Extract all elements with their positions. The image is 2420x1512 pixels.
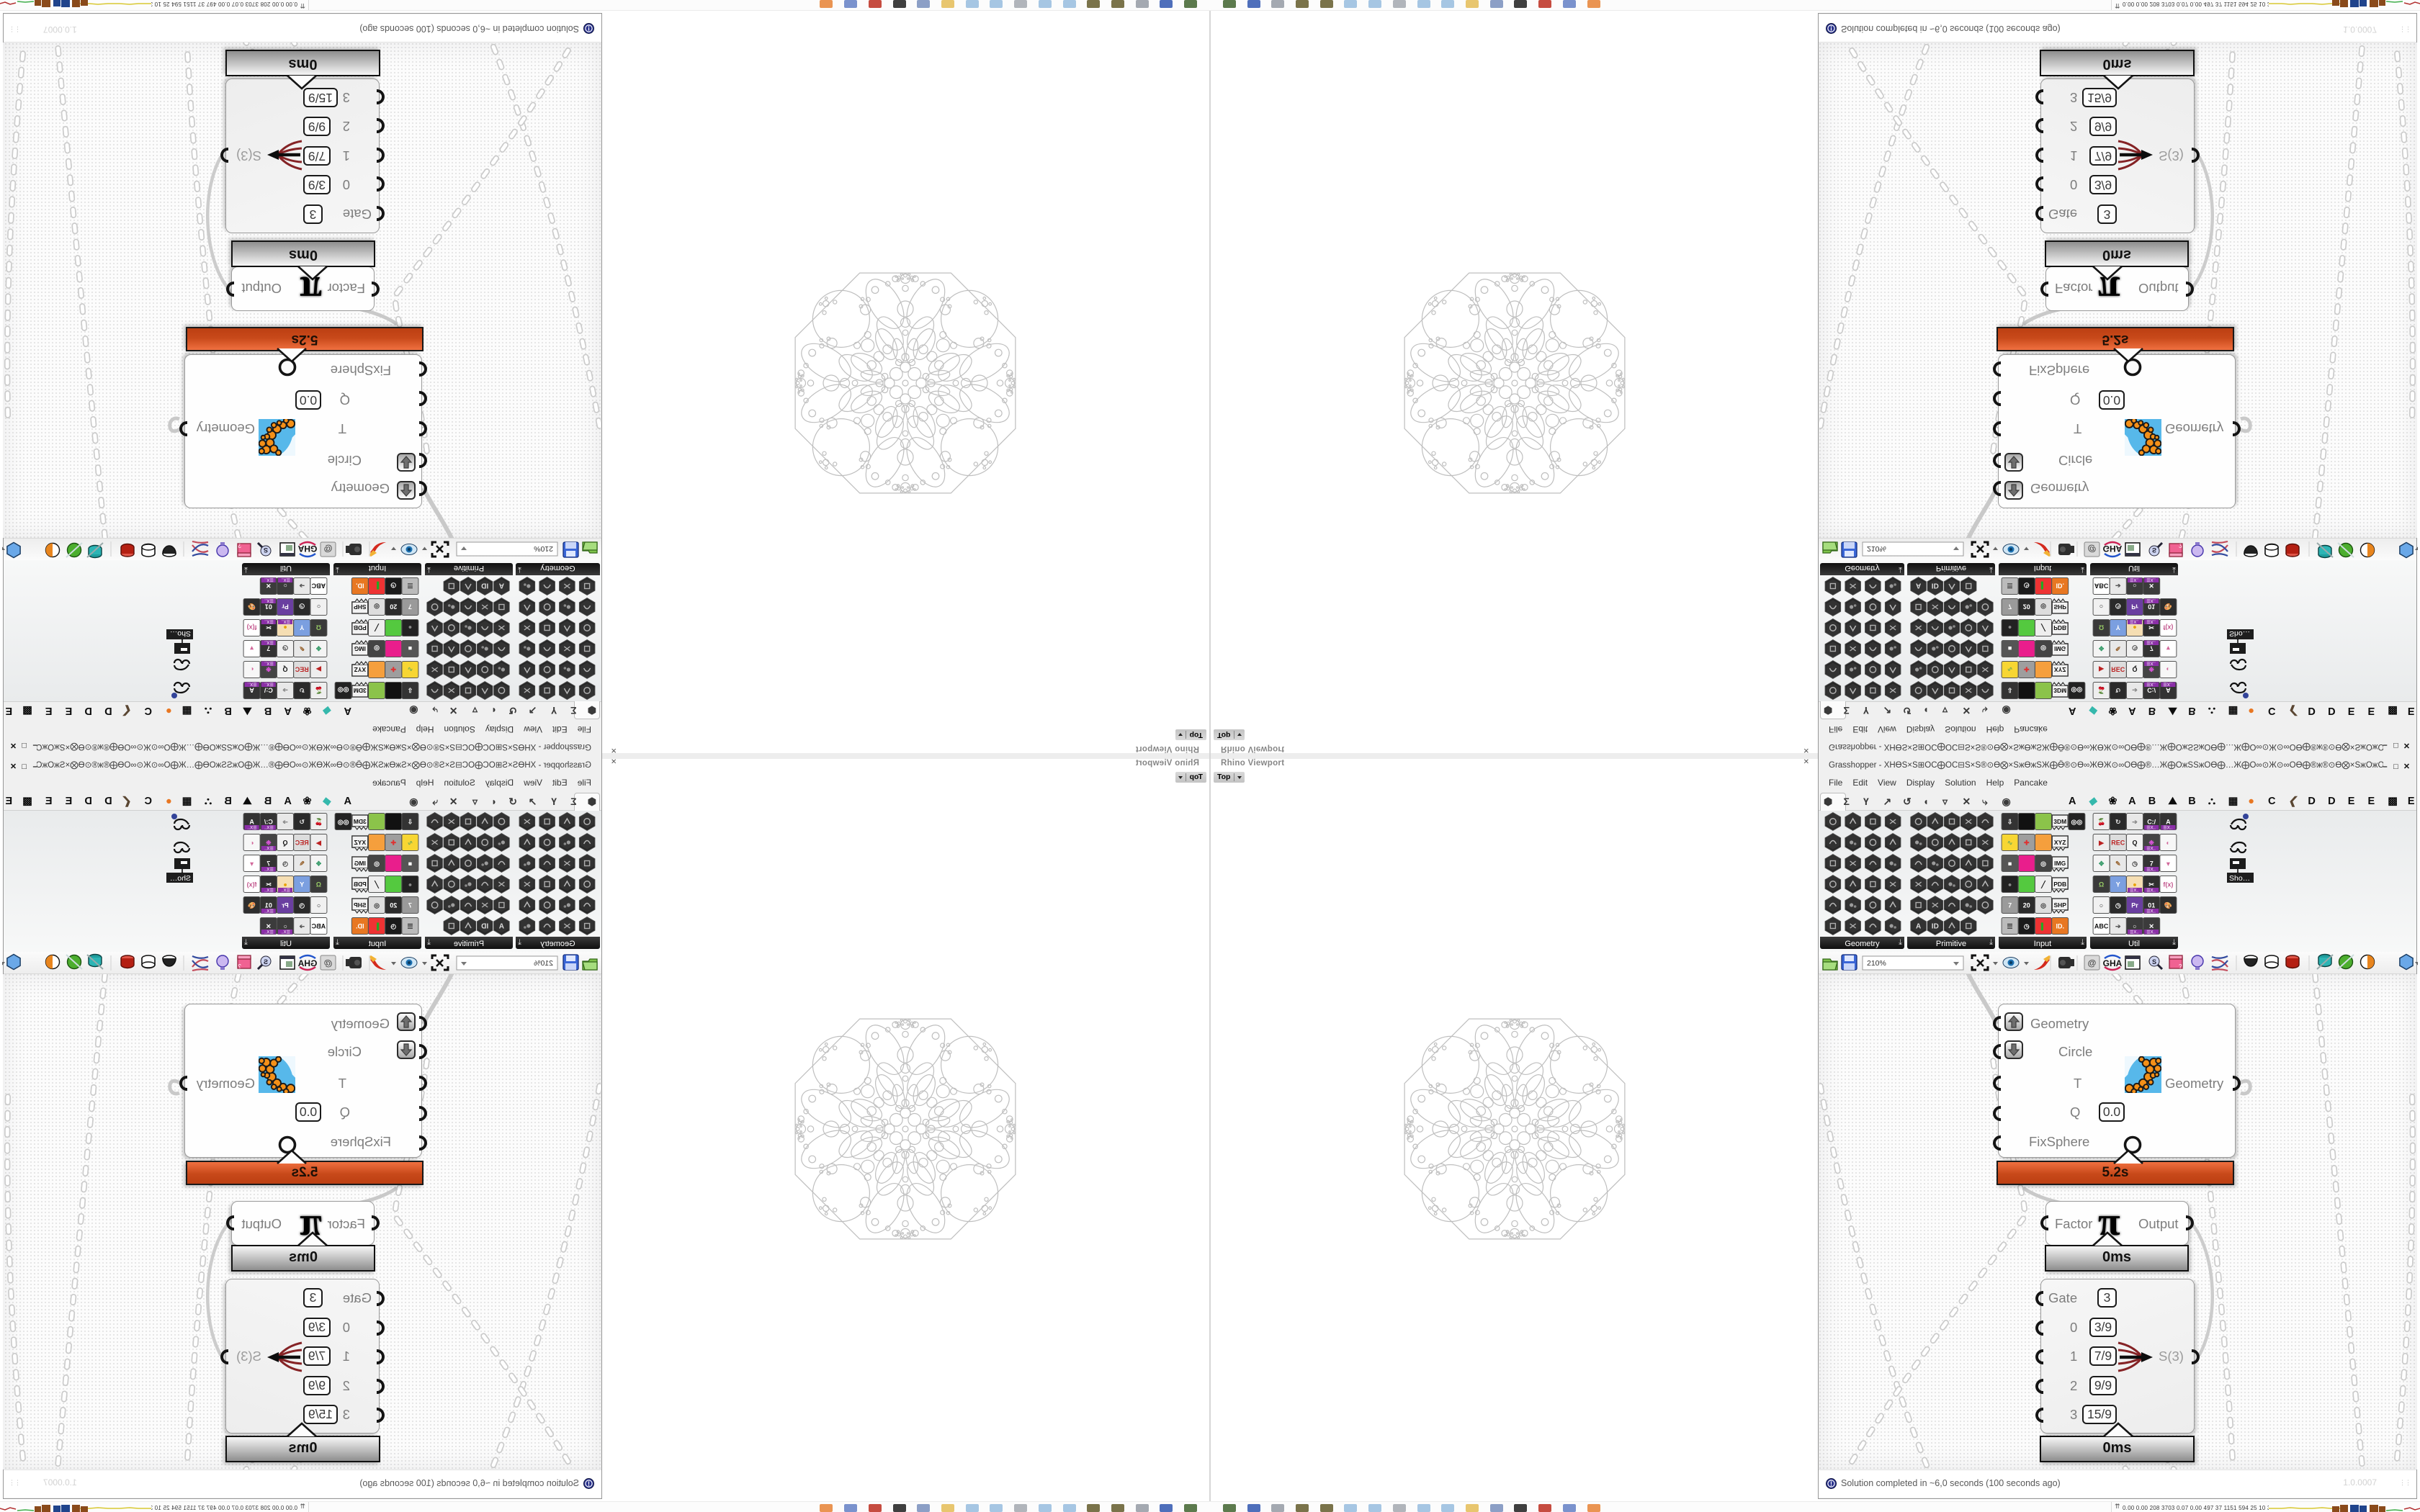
svg-text:A: A xyxy=(2166,687,2171,694)
svg-text:◷: ◷ xyxy=(2132,645,2138,652)
svg-text:☰X..: ☰X.. xyxy=(2163,682,2172,687)
svg-text:ABC: ABC xyxy=(311,582,326,590)
svg-text:⇩: ⇩ xyxy=(408,819,413,826)
svg-text:☰X..: ☰X.. xyxy=(264,577,274,582)
svg-text:Ω: Ω xyxy=(2099,881,2104,888)
svg-text:◷: ◷ xyxy=(299,603,305,611)
svg-text:■: ■ xyxy=(2008,645,2012,652)
svg-text:🎨: 🎨 xyxy=(248,901,256,909)
svg-text:◐: ◐ xyxy=(250,666,254,673)
svg-text:☰X..: ☰X.. xyxy=(2130,888,2139,894)
svg-text:☰X..: ☰X.. xyxy=(248,826,257,831)
svg-text:❉: ❉ xyxy=(266,666,272,673)
svg-text:Pr: Pr xyxy=(282,603,289,611)
svg-text:@: @ xyxy=(324,544,333,554)
svg-text:S: S xyxy=(2152,546,2156,554)
svg-text:✂: ✂ xyxy=(2148,624,2154,631)
svg-text:☰: ☰ xyxy=(407,923,413,930)
svg-text:◐: ◐ xyxy=(2166,840,2170,847)
svg-text:☰X..: ☰X.. xyxy=(2146,868,2156,873)
svg-text:◎◎: ◎◎ xyxy=(338,819,349,826)
svg-text:☰X..: ☰X.. xyxy=(264,619,274,624)
svg-text:☰X..: ☰X.. xyxy=(2130,619,2139,624)
svg-text:▌: ▌ xyxy=(375,922,379,931)
svg-text:?: ? xyxy=(2179,542,2182,549)
svg-text:▾: ▾ xyxy=(2166,645,2170,652)
svg-text:∿: ∿ xyxy=(408,840,413,847)
svg-text:ABC: ABC xyxy=(311,923,326,930)
svg-text:☰X..: ☰X.. xyxy=(264,868,274,873)
svg-text:✚: ✚ xyxy=(390,840,396,847)
svg-text:A: A xyxy=(1916,923,1921,931)
svg-text:✎: ✎ xyxy=(299,645,305,652)
svg-text:C:/: C:/ xyxy=(264,819,272,826)
svg-text:●: ● xyxy=(283,624,287,631)
svg-text:7: 7 xyxy=(2150,860,2154,868)
svg-text:20: 20 xyxy=(2023,603,2030,611)
svg-text:☰X..: ☰X.. xyxy=(2146,640,2156,645)
svg-text:f(x): f(x) xyxy=(247,624,257,631)
svg-text:Y: Y xyxy=(2116,881,2120,888)
svg-text:ABC: ABC xyxy=(2094,582,2109,590)
svg-text:☰X..: ☰X.. xyxy=(264,640,274,645)
svg-text:A: A xyxy=(499,582,504,590)
svg-text:C:/: C:/ xyxy=(2147,819,2156,826)
svg-text:7: 7 xyxy=(408,603,412,611)
svg-text:✚: ✚ xyxy=(2024,666,2030,673)
svg-text:➔: ➔ xyxy=(2115,582,2121,590)
svg-text:☰X..: ☰X.. xyxy=(2146,577,2156,582)
svg-text:●: ● xyxy=(283,881,287,888)
svg-text:!: ! xyxy=(1830,1480,1832,1488)
svg-text:XYZ: XYZ xyxy=(354,666,367,673)
svg-text:◎: ◎ xyxy=(2040,645,2046,652)
svg-text:☰X..: ☰X.. xyxy=(281,577,290,582)
svg-text:∿: ∿ xyxy=(2007,666,2013,673)
svg-text:◎◎: ◎◎ xyxy=(338,687,349,694)
svg-text:∿: ∿ xyxy=(408,666,413,673)
svg-text:▶: ▶ xyxy=(2098,840,2105,847)
svg-text:⇩: ⇩ xyxy=(2007,687,2013,694)
svg-text:Q: Q xyxy=(282,666,287,673)
svg-text:3DM: 3DM xyxy=(2053,818,2066,825)
svg-text:☰X..: ☰X.. xyxy=(264,598,274,603)
svg-text:➔: ➔ xyxy=(2132,687,2138,694)
svg-text:☰X..: ☰X.. xyxy=(2146,909,2156,914)
svg-text:☰X..: ☰X.. xyxy=(2146,619,2156,624)
svg-text:●: ● xyxy=(2133,881,2136,888)
svg-text:∿: ∿ xyxy=(2007,840,2013,847)
svg-text:✂: ✂ xyxy=(2148,881,2154,888)
svg-text:↻: ↻ xyxy=(299,819,305,826)
svg-text:◷: ◷ xyxy=(282,645,288,652)
svg-text:✎: ✎ xyxy=(2115,860,2121,868)
svg-text:➔: ➔ xyxy=(282,819,288,826)
svg-text:Y: Y xyxy=(300,624,304,631)
svg-text:ID.: ID. xyxy=(356,923,364,930)
svg-text:C:/: C:/ xyxy=(2147,687,2156,694)
svg-text:◷: ◷ xyxy=(2132,860,2138,868)
svg-text:✥: ✥ xyxy=(2099,645,2105,652)
svg-text:ID.: ID. xyxy=(2056,582,2064,590)
svg-text:◷: ◷ xyxy=(299,902,305,909)
svg-text:f(x): f(x) xyxy=(2163,881,2173,888)
svg-text:■: ■ xyxy=(408,860,412,868)
svg-text:@: @ xyxy=(324,958,333,968)
svg-text:✕: ✕ xyxy=(2148,923,2154,930)
svg-text:❉: ❉ xyxy=(2148,666,2154,673)
svg-text:➔: ➔ xyxy=(2115,923,2121,930)
svg-text:✕: ✕ xyxy=(266,923,272,930)
svg-text:ID: ID xyxy=(481,582,488,590)
svg-text:01: 01 xyxy=(265,902,272,909)
svg-text:✥: ✥ xyxy=(2099,860,2105,868)
svg-text:☰X..: ☰X.. xyxy=(2146,888,2156,894)
svg-text:○: ○ xyxy=(2099,902,2103,909)
svg-text:SHP: SHP xyxy=(2053,901,2066,909)
svg-text:◎: ◎ xyxy=(2040,603,2046,611)
svg-text:↻: ↻ xyxy=(2115,819,2121,826)
svg-text:☰X..: ☰X.. xyxy=(281,619,290,624)
svg-text:🍒: 🍒 xyxy=(2097,686,2105,695)
svg-text:🎨: 🎨 xyxy=(2164,603,2172,611)
svg-text:IMG: IMG xyxy=(354,645,365,652)
svg-text:🎨: 🎨 xyxy=(248,603,256,611)
svg-text:◷: ◷ xyxy=(2115,603,2121,611)
svg-text:○: ○ xyxy=(283,923,287,930)
svg-text:210%: 210% xyxy=(534,959,553,968)
svg-text:REC: REC xyxy=(295,666,309,673)
svg-text:◷: ◷ xyxy=(2024,923,2030,930)
svg-text:◷: ◷ xyxy=(390,582,396,590)
svg-text:210%: 210% xyxy=(534,544,553,553)
svg-text:▶: ▶ xyxy=(2098,666,2105,673)
svg-text:Y: Y xyxy=(300,881,304,888)
svg-text:☰X..: ☰X.. xyxy=(2130,577,2139,582)
svg-text:▶: ▶ xyxy=(315,666,322,673)
svg-text:◎: ◎ xyxy=(374,860,380,868)
svg-text:▌: ▌ xyxy=(375,582,379,590)
svg-text:☰: ☰ xyxy=(407,582,413,590)
svg-text:Ω: Ω xyxy=(316,624,321,631)
svg-text:◷: ◷ xyxy=(390,923,396,930)
svg-text:☰X..: ☰X.. xyxy=(2146,661,2156,666)
svg-text:ID.: ID. xyxy=(356,582,364,590)
svg-text:Q: Q xyxy=(282,840,287,847)
svg-text:7: 7 xyxy=(2008,603,2012,611)
svg-text:XYZ: XYZ xyxy=(2054,839,2066,846)
svg-text:7: 7 xyxy=(266,645,270,652)
svg-text:ID.: ID. xyxy=(2056,923,2064,930)
svg-text:✥: ✥ xyxy=(315,645,321,652)
svg-text:✥: ✥ xyxy=(315,860,321,868)
svg-text:✕: ✕ xyxy=(266,582,272,590)
svg-text:210%: 210% xyxy=(1867,544,1886,553)
svg-text:A: A xyxy=(249,819,254,826)
svg-text:f(x): f(x) xyxy=(247,881,257,888)
svg-text:➔: ➔ xyxy=(2132,819,2138,826)
svg-text:⇩: ⇩ xyxy=(2007,819,2013,826)
svg-text:◷: ◷ xyxy=(2024,582,2030,590)
svg-text:XYZ: XYZ xyxy=(2054,666,2066,673)
svg-text:○: ○ xyxy=(317,603,321,611)
svg-text:◷: ◷ xyxy=(282,860,288,868)
svg-text:SHP: SHP xyxy=(354,901,367,909)
svg-text:➔: ➔ xyxy=(282,687,288,694)
svg-text:◷: ◷ xyxy=(2115,902,2121,909)
svg-text:☰: ☰ xyxy=(2007,582,2013,590)
svg-text:210%: 210% xyxy=(1867,959,1886,968)
svg-text:❉: ❉ xyxy=(266,840,272,847)
svg-text:➔: ➔ xyxy=(299,582,305,590)
svg-text:○: ○ xyxy=(2133,923,2136,930)
svg-text:▌: ▌ xyxy=(2041,582,2045,590)
svg-text:Pr: Pr xyxy=(282,902,289,909)
svg-text:◎: ◎ xyxy=(374,902,380,909)
svg-text:✚: ✚ xyxy=(2024,840,2030,847)
svg-text:01: 01 xyxy=(2148,603,2155,611)
svg-text:●: ● xyxy=(2008,881,2012,888)
svg-text:●: ● xyxy=(2008,624,2012,631)
svg-text:☰X..: ☰X.. xyxy=(2146,682,2156,687)
svg-text:f(x): f(x) xyxy=(2163,624,2173,631)
svg-text:●: ● xyxy=(408,624,412,631)
svg-text:?: ? xyxy=(2179,963,2182,970)
svg-text:3DM: 3DM xyxy=(354,818,367,825)
svg-text:ID: ID xyxy=(1932,582,1939,590)
svg-text:◎: ◎ xyxy=(374,603,380,611)
svg-text:SHP: SHP xyxy=(354,603,367,611)
svg-text:01: 01 xyxy=(265,603,272,611)
svg-text:◎: ◎ xyxy=(2040,902,2046,909)
svg-text:☰X..: ☰X.. xyxy=(2146,930,2156,935)
svg-text:01: 01 xyxy=(2148,902,2155,909)
svg-text:A: A xyxy=(499,923,504,931)
svg-text:?: ? xyxy=(238,542,241,549)
svg-text:▌: ▌ xyxy=(2041,922,2045,931)
svg-text:☰X..: ☰X.. xyxy=(281,930,290,935)
svg-text:🎨: 🎨 xyxy=(2164,901,2172,909)
svg-text:PDB: PDB xyxy=(354,881,367,888)
svg-text:▶: ▶ xyxy=(315,840,322,847)
svg-text:7: 7 xyxy=(408,902,412,909)
svg-text:☰X..: ☰X.. xyxy=(264,682,274,687)
svg-text:Y: Y xyxy=(2116,624,2120,631)
svg-text:☰X..: ☰X.. xyxy=(264,826,274,831)
svg-text:PDB: PDB xyxy=(2053,624,2066,631)
svg-text:✂: ✂ xyxy=(266,624,272,631)
svg-text:Pr: Pr xyxy=(2131,902,2138,909)
svg-text:S: S xyxy=(264,958,268,966)
svg-text:ID: ID xyxy=(1932,923,1939,931)
svg-text:⇩: ⇩ xyxy=(408,687,413,694)
svg-text:■: ■ xyxy=(2008,860,2012,868)
svg-text:☰X..: ☰X.. xyxy=(2146,826,2156,831)
svg-text:@: @ xyxy=(2088,958,2097,968)
svg-text:PDB: PDB xyxy=(2053,881,2066,888)
svg-text:◐: ◐ xyxy=(250,840,254,847)
svg-text:❉: ❉ xyxy=(2148,840,2154,847)
svg-text:☰X..: ☰X.. xyxy=(264,847,274,852)
svg-text:!: ! xyxy=(1830,25,1832,32)
svg-text:S: S xyxy=(264,546,268,554)
svg-text:◎: ◎ xyxy=(2040,860,2046,868)
svg-text:☰X..: ☰X.. xyxy=(264,888,274,894)
svg-text:3DM: 3DM xyxy=(2053,687,2066,694)
svg-text:☰X..: ☰X.. xyxy=(2130,930,2139,935)
svg-text:3DM: 3DM xyxy=(354,687,367,694)
svg-text:✕: ✕ xyxy=(2148,582,2154,590)
svg-text:☰X..: ☰X.. xyxy=(248,682,257,687)
svg-text:ID: ID xyxy=(481,923,488,931)
svg-text:➔: ➔ xyxy=(299,923,305,930)
svg-text:◎: ◎ xyxy=(374,645,380,652)
svg-text:?: ? xyxy=(238,963,241,970)
svg-text:Sho…: Sho… xyxy=(2229,629,2250,638)
svg-text:Sho…: Sho… xyxy=(170,874,191,883)
svg-text:◎◎: ◎◎ xyxy=(2071,819,2083,826)
svg-text:7: 7 xyxy=(2008,902,2012,909)
svg-text:▾: ▾ xyxy=(2166,860,2170,868)
svg-text:🍒: 🍒 xyxy=(2097,818,2105,827)
svg-text:▾: ▾ xyxy=(250,645,254,652)
svg-text:REC: REC xyxy=(295,840,309,847)
svg-text:Ω: Ω xyxy=(316,881,321,888)
svg-text:!: ! xyxy=(588,1480,590,1488)
svg-text:↻: ↻ xyxy=(299,687,305,694)
svg-text:A: A xyxy=(2166,819,2171,826)
svg-text:IMG: IMG xyxy=(354,860,365,867)
svg-text:☰X..: ☰X.. xyxy=(264,930,274,935)
svg-text:PDB: PDB xyxy=(354,624,367,631)
svg-text:S: S xyxy=(2152,958,2156,966)
svg-text:20: 20 xyxy=(390,603,397,611)
svg-text:☰X..: ☰X.. xyxy=(2146,847,2156,852)
svg-text:●: ● xyxy=(408,881,412,888)
svg-text:Sho…: Sho… xyxy=(170,629,191,638)
svg-text:✎: ✎ xyxy=(299,860,305,868)
svg-text:▾: ▾ xyxy=(250,860,254,868)
svg-text:Ω: Ω xyxy=(2099,624,2104,631)
svg-text:20: 20 xyxy=(390,902,397,909)
svg-text:REC: REC xyxy=(2111,666,2125,673)
svg-text:ABC: ABC xyxy=(2094,923,2109,930)
svg-text:IMG: IMG xyxy=(2054,860,2066,867)
svg-text:7: 7 xyxy=(2150,645,2154,652)
svg-text:☰X..: ☰X.. xyxy=(281,888,290,894)
svg-text:Q: Q xyxy=(2132,840,2137,847)
svg-text:◎◎: ◎◎ xyxy=(2071,687,2083,694)
svg-text:7: 7 xyxy=(266,860,270,868)
svg-text:☰X..: ☰X.. xyxy=(264,661,274,666)
svg-text:○: ○ xyxy=(2133,582,2136,590)
svg-text:A: A xyxy=(249,687,254,694)
svg-text:■: ■ xyxy=(408,645,412,652)
svg-text:☰X..: ☰X.. xyxy=(264,909,274,914)
svg-text:SHP: SHP xyxy=(2053,603,2066,611)
svg-text:A: A xyxy=(1916,582,1921,590)
svg-text:✎: ✎ xyxy=(2115,645,2121,652)
svg-text:☰: ☰ xyxy=(2007,923,2013,930)
svg-text:↻: ↻ xyxy=(2115,687,2121,694)
svg-text:!: ! xyxy=(588,25,590,32)
svg-text:Q: Q xyxy=(2132,666,2137,673)
svg-text:○: ○ xyxy=(2099,603,2103,611)
svg-text:🍒: 🍒 xyxy=(315,818,323,827)
svg-text:XYZ: XYZ xyxy=(354,839,367,846)
svg-text:●: ● xyxy=(2133,624,2136,631)
svg-text:REC: REC xyxy=(2111,840,2125,847)
svg-text:Pr: Pr xyxy=(2131,603,2138,611)
svg-text:✂: ✂ xyxy=(266,881,272,888)
svg-text:○: ○ xyxy=(283,582,287,590)
svg-text:○: ○ xyxy=(317,902,321,909)
svg-text:IMG: IMG xyxy=(2054,645,2066,652)
svg-text:◐: ◐ xyxy=(2166,666,2170,673)
svg-text:20: 20 xyxy=(2023,902,2030,909)
svg-text:Sho…: Sho… xyxy=(2229,874,2250,883)
svg-text:🍒: 🍒 xyxy=(315,686,323,695)
svg-text:☰X..: ☰X.. xyxy=(2146,598,2156,603)
svg-text:C:/: C:/ xyxy=(264,687,272,694)
svg-text:✚: ✚ xyxy=(390,666,396,673)
svg-text:☰X..: ☰X.. xyxy=(2163,826,2172,831)
svg-text:@: @ xyxy=(2088,544,2097,554)
